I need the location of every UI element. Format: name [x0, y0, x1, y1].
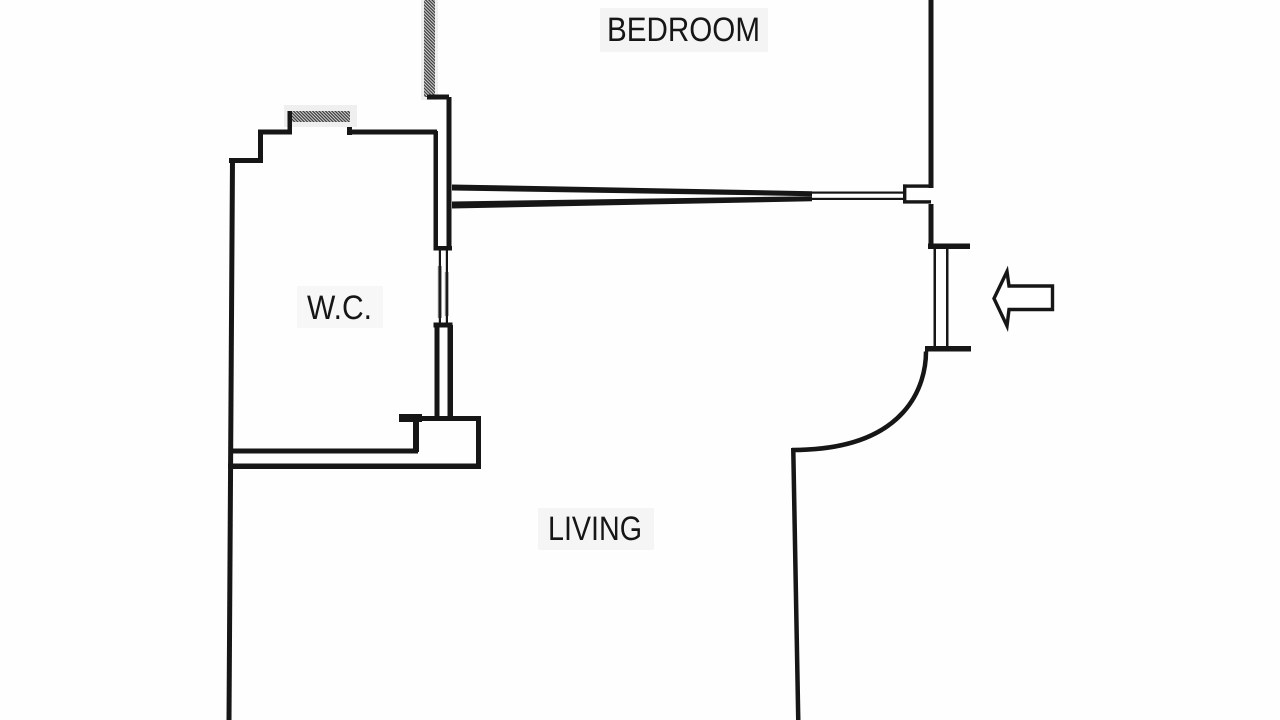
svg-text:W.C.: W.C.: [307, 289, 372, 327]
svg-text:LIVING: LIVING: [548, 510, 642, 548]
svg-text:BEDROOM: BEDROOM: [607, 11, 760, 49]
